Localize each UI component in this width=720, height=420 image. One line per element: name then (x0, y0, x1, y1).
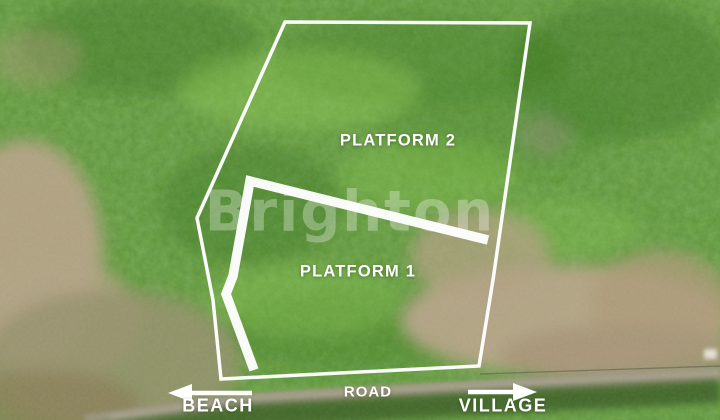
platform-2-label: PLATFORM 2 (340, 132, 456, 151)
platform-1-label: PLATFORM 1 (300, 263, 416, 282)
beach-label: BEACH (182, 396, 254, 417)
watermark: Brighton (205, 180, 496, 245)
aerial-photo: Brighton PLATFORM 2 PLATFORM 1 ROAD BEAC… (0, 0, 720, 420)
road-label: ROAD (344, 384, 392, 401)
village-label: VILLAGE (459, 396, 548, 417)
